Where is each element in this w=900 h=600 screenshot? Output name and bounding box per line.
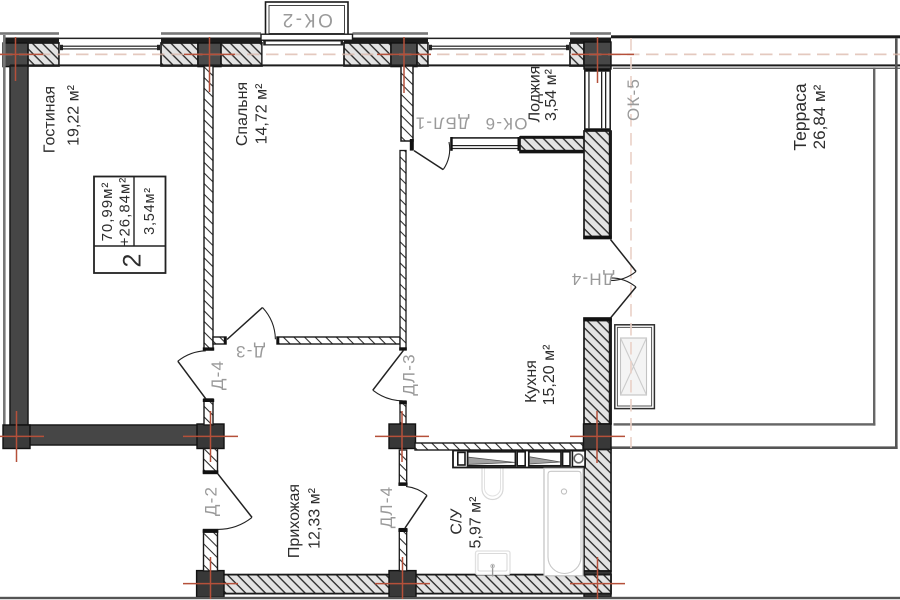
svg-text:3,54м²: 3,54м² — [142, 187, 158, 235]
svg-text:2: 2 — [119, 254, 147, 268]
svg-text:Д-4: Д-4 — [208, 360, 227, 390]
svg-text:12,33 м²: 12,33 м² — [307, 487, 324, 548]
svg-text:Терраса: Терраса — [790, 83, 810, 150]
svg-text:19,22 м²: 19,22 м² — [66, 84, 83, 145]
svg-text:ОК-2: ОК-2 — [280, 9, 333, 30]
svg-text:Д-2: Д-2 — [202, 486, 221, 516]
svg-text:С/У: С/У — [449, 508, 466, 535]
svg-text:Гостиная: Гостиная — [42, 86, 59, 153]
svg-text:Д-3: Д-3 — [235, 342, 265, 361]
svg-text:Лоджия: Лоджия — [527, 66, 544, 123]
svg-text:ДЛ-3: ДЛ-3 — [400, 353, 419, 396]
svg-text:ОК-6: ОК-6 — [484, 114, 527, 133]
svg-text:14,72 м²: 14,72 м² — [254, 83, 271, 144]
svg-text:ДБЛ-1: ДБЛ-1 — [415, 114, 470, 133]
svg-text:26,84 м²: 26,84 м² — [810, 84, 829, 149]
svg-text:15,20 м²: 15,20 м² — [541, 344, 558, 405]
svg-text:ДН-4: ДН-4 — [571, 270, 615, 289]
svg-text:ДЛ-4: ДЛ-4 — [377, 486, 396, 529]
svg-text:3,54 м²: 3,54 м² — [543, 68, 560, 121]
svg-text:5,97 м²: 5,97 м² — [468, 496, 485, 549]
svg-text:+26,84м²: +26,84м² — [117, 177, 134, 247]
svg-text:Прихожая: Прихожая — [286, 484, 303, 558]
svg-text:Спальня: Спальня — [234, 82, 251, 146]
svg-text:Кухня: Кухня — [523, 360, 540, 403]
svg-text:70,99м²: 70,99м² — [99, 182, 116, 242]
svg-text:ОК-5: ОК-5 — [624, 78, 643, 121]
